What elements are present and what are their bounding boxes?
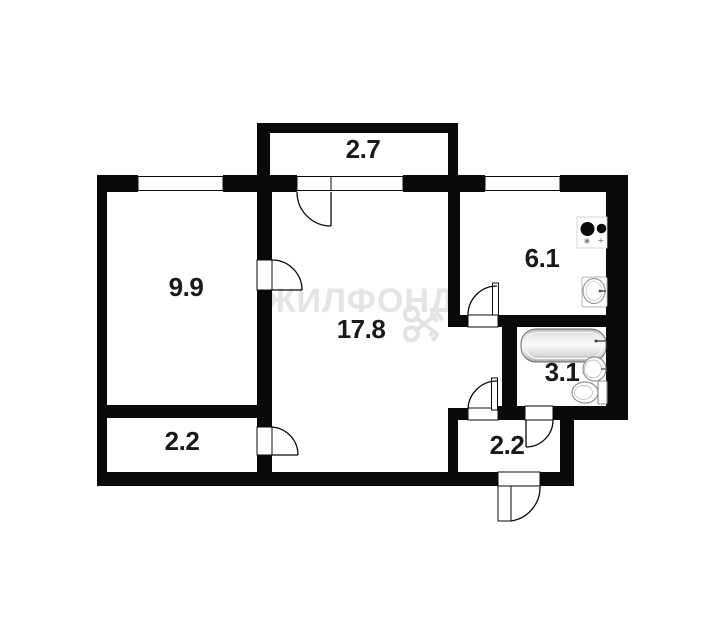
door-entrance [498, 472, 540, 521]
washbasin-icon [583, 357, 606, 381]
windows [138, 177, 560, 191]
wall-segment [257, 123, 270, 180]
room-area-label-living: 17.8 [337, 314, 386, 344]
wall-segment [448, 192, 460, 327]
door-hallway [468, 378, 498, 420]
floor-plan-page: ЖИЛФОНД [0, 0, 725, 629]
door-kitchen [468, 283, 499, 327]
wall-segment [448, 408, 458, 472]
wall-segment [448, 123, 458, 180]
room-area-label-hallway: 2.2 [490, 430, 525, 460]
wall-segment [97, 472, 498, 486]
wall-segment [540, 472, 574, 486]
wall-segment [502, 327, 517, 406]
wall-segment [107, 405, 257, 418]
window-bedroom [138, 177, 223, 191]
wall-segment [498, 406, 525, 420]
door-bathroom [525, 406, 553, 447]
balcony-glazing [297, 177, 403, 191]
wall-segment [448, 315, 468, 327]
room-area-label-closet: 2.2 [165, 426, 200, 456]
wall-segment [97, 175, 138, 192]
room-area-label-bathroom: 3.1 [545, 357, 580, 387]
wall-segment [606, 175, 628, 420]
floor-plan-canvas: ЖИЛФОНД [0, 0, 725, 629]
wall-segment [403, 175, 485, 192]
door-balcony [297, 192, 331, 226]
wall-segment [257, 192, 272, 260]
room-area-label-balcony: 2.7 [346, 134, 381, 164]
room-area-label-bedroom: 9.9 [169, 272, 204, 302]
wall-segment [97, 175, 107, 486]
wall-segment [498, 315, 628, 327]
window-kitchen [485, 177, 560, 191]
room-area-label-kitchen: 6.1 [525, 243, 560, 273]
wall-segment [257, 290, 272, 427]
stove-icon [577, 217, 607, 248]
kitchen-sink-icon [582, 277, 607, 307]
wall-segment [257, 123, 458, 133]
wall-segment [257, 455, 272, 472]
door-closet [257, 427, 298, 455]
